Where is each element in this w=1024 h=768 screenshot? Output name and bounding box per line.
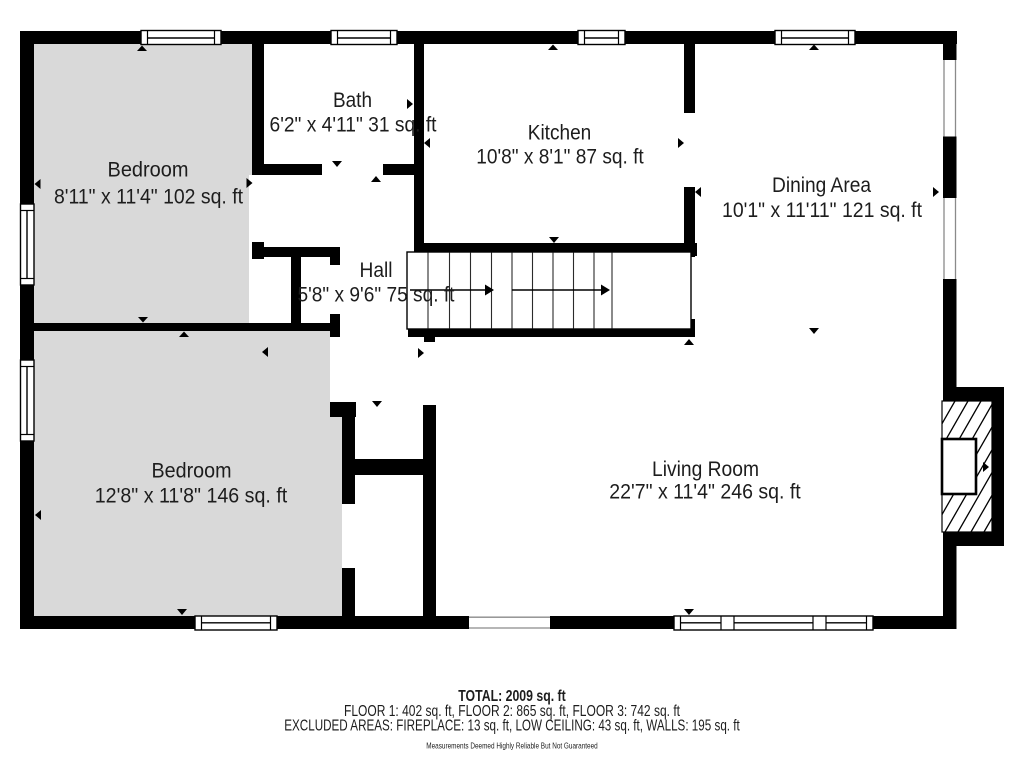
svg-text:5'8" x 9'6" 75 sq. ft: 5'8" x 9'6" 75 sq. ft: [298, 283, 455, 307]
svg-text:Dining Area: Dining Area: [772, 173, 871, 197]
svg-text:Kitchen: Kitchen: [528, 121, 592, 145]
svg-text:Living Room: Living Room: [652, 457, 759, 481]
svg-text:Bedroom: Bedroom: [152, 459, 232, 483]
svg-text:Measurements Deemed Highly Rel: Measurements Deemed Highly Reliable But …: [426, 741, 598, 751]
svg-text:10'1" x 11'11" 121 sq. ft: 10'1" x 11'11" 121 sq. ft: [722, 198, 922, 222]
svg-text:8'11" x 11'4" 102 sq. ft: 8'11" x 11'4" 102 sq. ft: [54, 185, 243, 209]
svg-text:EXCLUDED AREAS: FIREPLACE: 13: EXCLUDED AREAS: FIREPLACE: 13 sq. ft, LO…: [284, 718, 740, 735]
svg-text:6'2" x 4'11" 31 sq. ft: 6'2" x 4'11" 31 sq. ft: [270, 113, 437, 137]
svg-text:10'8" x 8'1" 87 sq. ft: 10'8" x 8'1" 87 sq. ft: [476, 145, 644, 169]
svg-text:Hall: Hall: [360, 258, 393, 282]
svg-text:Bedroom: Bedroom: [108, 158, 189, 182]
svg-text:12'8" x 11'8" 146 sq. ft: 12'8" x 11'8" 146 sq. ft: [95, 484, 288, 508]
svg-text:22'7" x 11'4" 246 sq. ft: 22'7" x 11'4" 246 sq. ft: [609, 480, 801, 504]
svg-text:Bath: Bath: [333, 88, 372, 112]
